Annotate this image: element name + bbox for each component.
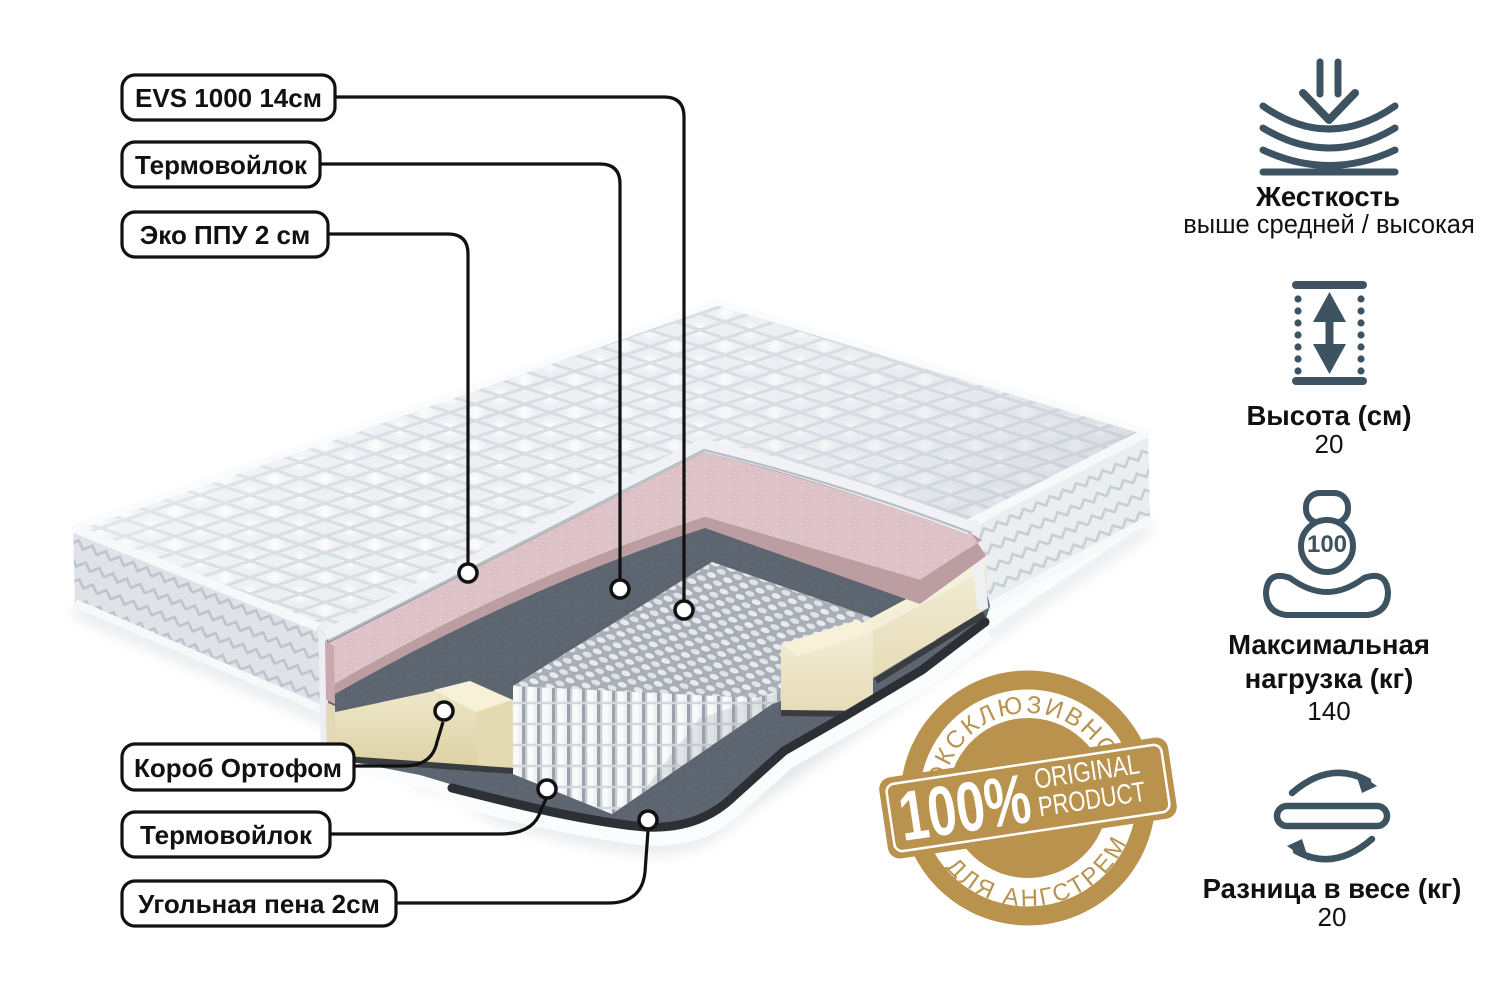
svg-text:100: 100	[1307, 531, 1347, 558]
svg-text:Термовойлок: Термовойлок	[135, 150, 308, 180]
svg-text:Термовойлок: Термовойлок	[140, 820, 313, 850]
svg-text:Максимальная: Максимальная	[1228, 629, 1430, 660]
svg-text:Жесткость: Жесткость	[1255, 181, 1400, 212]
svg-text:Высота (см): Высота (см)	[1246, 400, 1411, 431]
svg-text:20: 20	[1315, 429, 1344, 459]
svg-text:выше средней / высокая: выше средней / высокая	[1183, 211, 1475, 239]
svg-text:20: 20	[1318, 902, 1347, 932]
svg-text:нагрузка (кг): нагрузка (кг)	[1245, 663, 1414, 694]
svg-text:Эко ППУ 2 см: Эко ППУ 2 см	[140, 220, 310, 250]
svg-text:Угольная пена 2см: Угольная пена 2см	[138, 889, 380, 919]
svg-text:Короб Ортофом: Короб Ортофом	[134, 753, 342, 783]
svg-text:140: 140	[1307, 696, 1350, 726]
svg-text:Разница в весе (кг): Разница в весе (кг)	[1203, 873, 1462, 904]
svg-text:EVS 1000 14см: EVS 1000 14см	[135, 83, 322, 113]
